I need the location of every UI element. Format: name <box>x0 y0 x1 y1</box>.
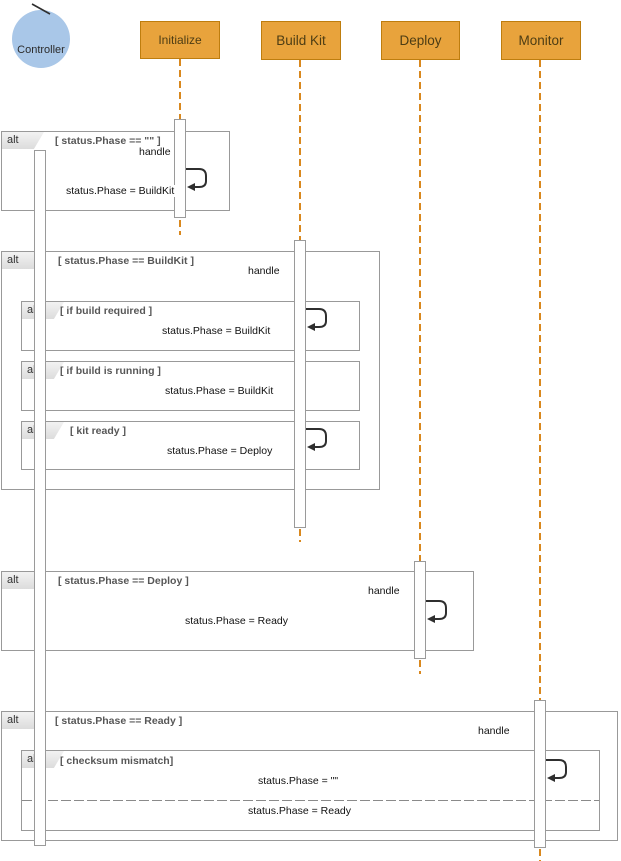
controller-actor-label: Controller <box>1 44 81 56</box>
participant-header-buildkit: Build Kit <box>261 21 341 60</box>
lifeline-monitor-tail <box>539 849 541 861</box>
lifeline-initialize <box>179 59 181 120</box>
participant-header-deploy: Deploy <box>381 21 460 60</box>
message-phase-ready-1: status.Phase = Ready <box>183 615 290 627</box>
message-handle-buildkit: handle <box>246 265 282 277</box>
message-handle-deploy: handle <box>366 585 402 597</box>
activation-initialize <box>174 119 186 218</box>
lifeline-monitor <box>539 60 541 700</box>
alt-operator-tab: alt <box>2 132 44 149</box>
lifeline-initialize-tail <box>179 220 181 235</box>
self-message-arrow-icon <box>306 426 330 452</box>
lifeline-buildkit <box>299 60 301 240</box>
message-phase-deploy: status.Phase = Deploy <box>165 445 274 457</box>
message-phase-empty: status.Phase = "" <box>256 775 340 787</box>
lifeline-deploy-tail <box>419 660 421 674</box>
activation-buildkit <box>294 240 306 528</box>
guard-phase-deploy: [ status.Phase == Deploy ] <box>58 575 189 587</box>
message-phase-buildkit-2: status.Phase = BuildKit <box>160 325 272 337</box>
sequence-diagram: alt [ status.Phase == "" ] alt [ status.… <box>0 0 621 861</box>
activation-controller <box>34 150 46 846</box>
self-message-arrow-icon <box>186 166 210 192</box>
message-handle-monitor: handle <box>476 725 512 737</box>
controller-actor-icon <box>0 0 80 72</box>
lifeline-deploy <box>419 60 421 561</box>
message-phase-ready-2: status.Phase = Ready <box>246 805 353 817</box>
lifeline-buildkit-tail <box>299 529 301 542</box>
guard-build-required: [ if build required ] <box>60 305 152 317</box>
participant-header-monitor: Monitor <box>501 21 581 60</box>
guard-phase-ready: [ status.Phase == Ready ] <box>55 715 182 727</box>
guard-kit-ready: [ kit ready ] <box>70 425 126 437</box>
participant-header-initialize: Initialize <box>140 21 220 59</box>
guard-checksum-mismatch: [ checksum mismatch] <box>60 755 173 767</box>
message-phase-buildkit-3: status.Phase = BuildKit <box>163 385 275 397</box>
guard-phase-buildkit: [ status.Phase == BuildKit ] <box>58 255 194 267</box>
guard-build-running: [ if build is running ] <box>60 365 161 377</box>
self-message-arrow-icon <box>546 757 570 783</box>
activation-deploy <box>414 561 426 659</box>
self-message-arrow-icon <box>306 306 330 332</box>
message-phase-buildkit-1: status.Phase = BuildKit <box>64 185 176 197</box>
self-message-arrow-icon <box>426 598 450 624</box>
message-handle-initialize: handle <box>137 146 173 158</box>
activation-monitor <box>534 700 546 848</box>
alt-else-divider <box>22 800 599 801</box>
